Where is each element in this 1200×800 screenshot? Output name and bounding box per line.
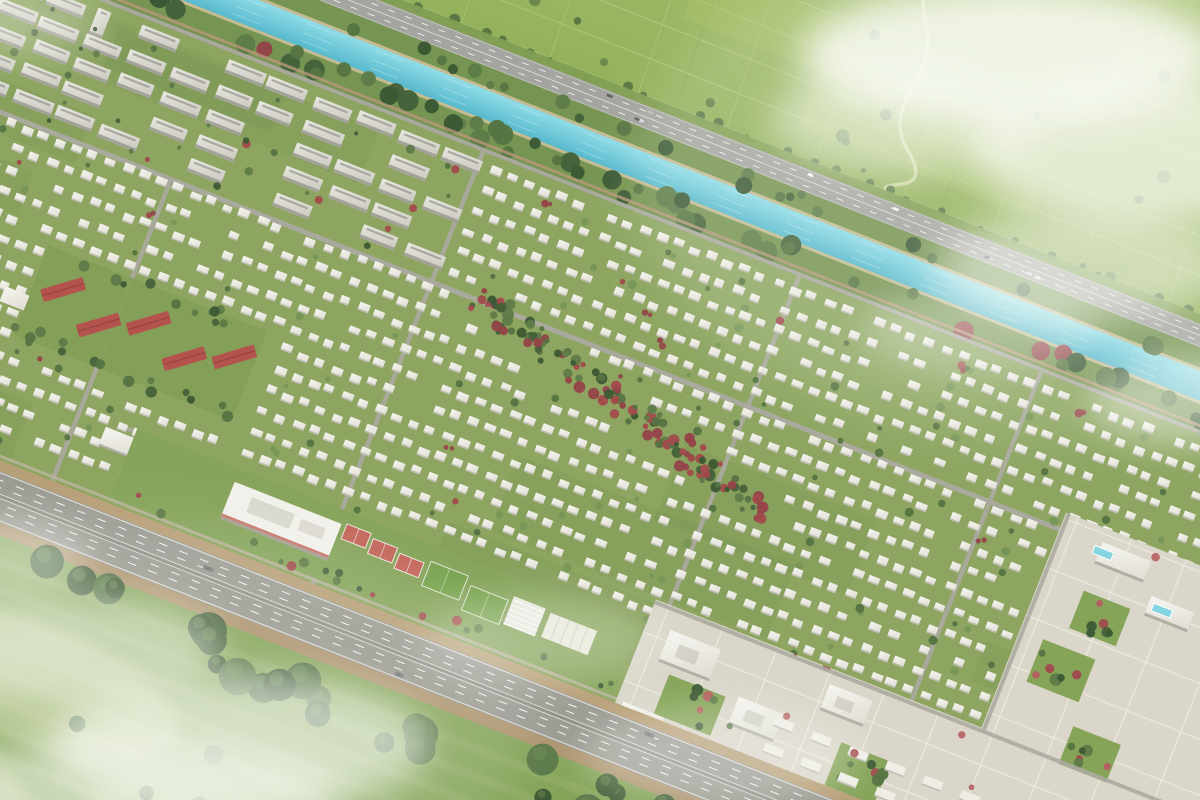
- aerial-masterplan-rendering: Bird's-eye rendering of a master-planned…: [0, 0, 1200, 800]
- clouds-overlay: [0, 0, 1200, 800]
- rendering-canvas: Bird's-eye rendering of a master-planned…: [0, 0, 1200, 800]
